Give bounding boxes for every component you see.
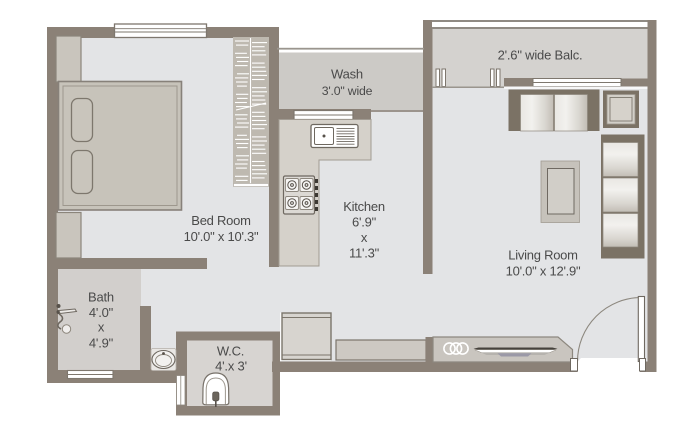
svg-text:10'.0" x 10'.3": 10'.0" x 10'.3": [184, 229, 259, 244]
svg-text:Kitchen: Kitchen: [343, 199, 385, 214]
svg-text:6'.9": 6'.9": [352, 215, 377, 230]
svg-text:4'.9": 4'.9": [89, 336, 114, 351]
svg-text:10'.0" x 12'.9": 10'.0" x 12'.9": [506, 264, 581, 279]
svg-text:4'.0": 4'.0": [89, 305, 114, 320]
svg-text:x: x: [98, 320, 105, 335]
svg-text:3'.0" wide: 3'.0" wide: [322, 84, 373, 98]
svg-text:Wash: Wash: [331, 67, 363, 82]
svg-text:x: x: [361, 230, 368, 245]
svg-text:4'.x 3': 4'.x 3': [215, 359, 247, 374]
svg-text:Bath: Bath: [88, 290, 114, 305]
svg-text:11'.3": 11'.3": [349, 246, 380, 261]
svg-text:2'.6" wide Balc.: 2'.6" wide Balc.: [498, 48, 583, 63]
svg-text:W.C.: W.C.: [217, 344, 244, 359]
svg-text:Bed Room: Bed Room: [191, 213, 250, 228]
svg-text:Living Room: Living Room: [508, 248, 578, 263]
